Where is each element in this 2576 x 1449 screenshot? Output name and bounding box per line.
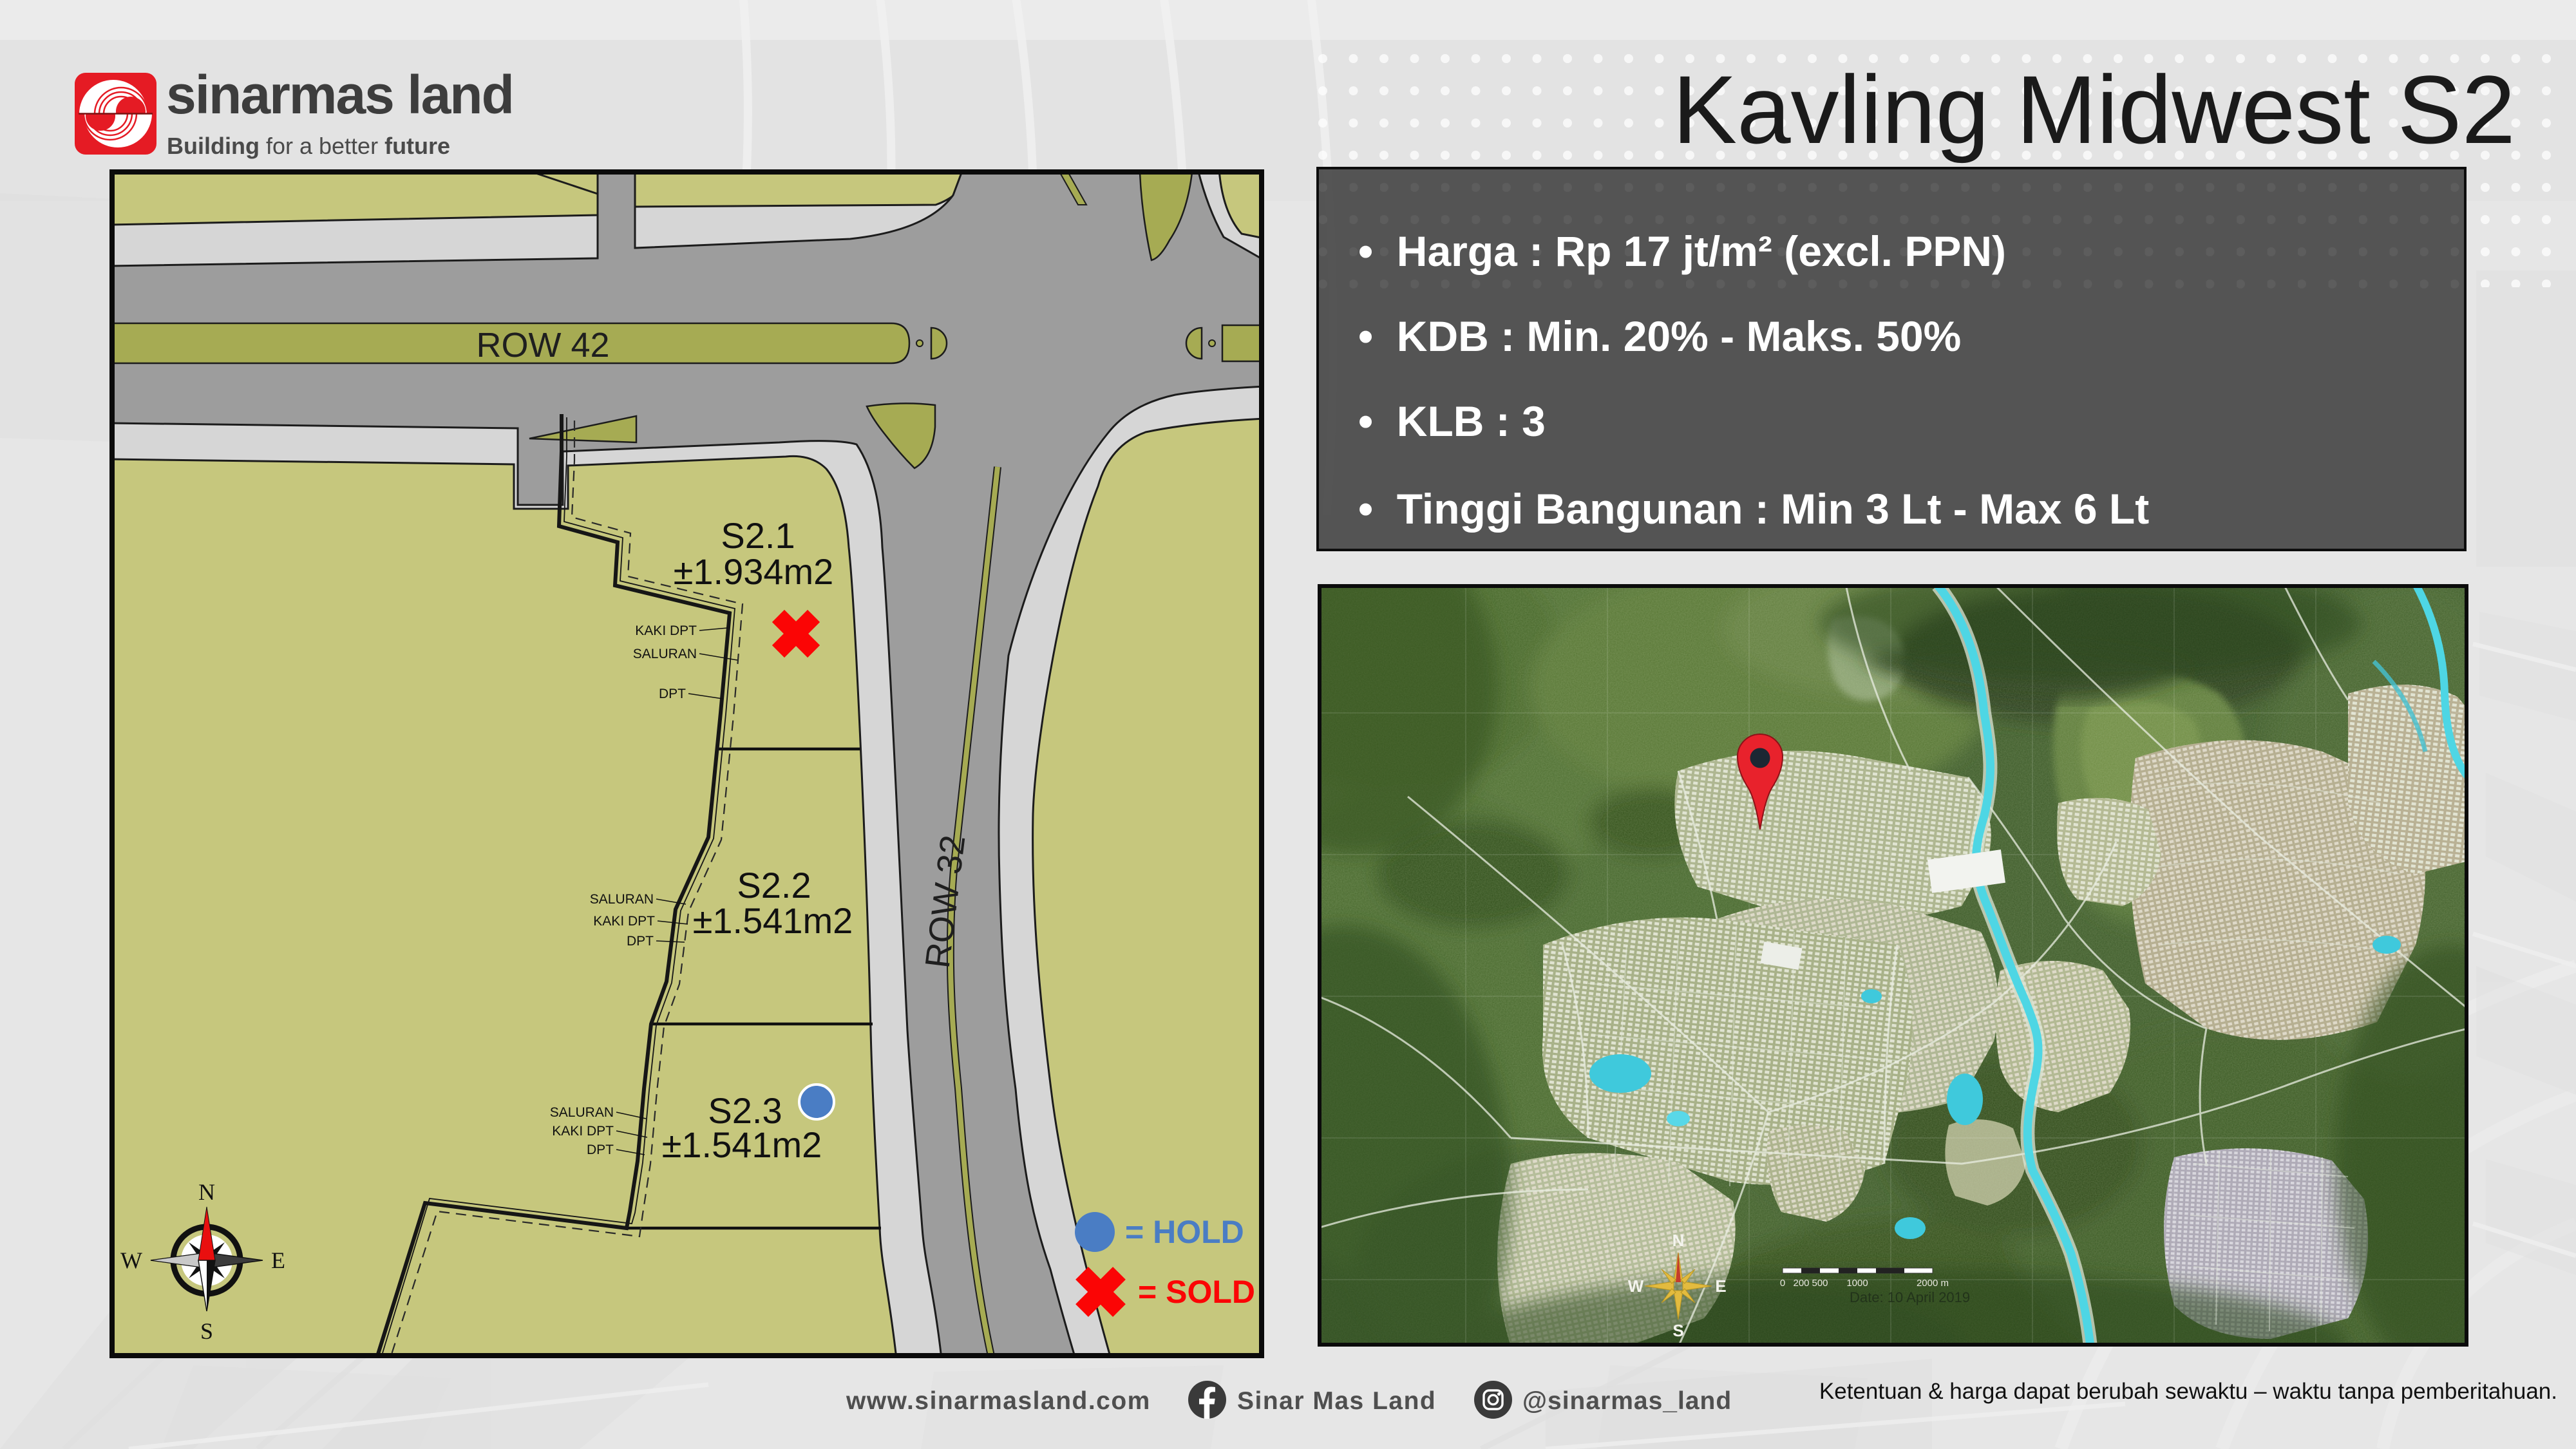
svg-text:E: E — [1715, 1276, 1726, 1296]
svg-text:±1.541m2: ±1.541m2 — [693, 900, 853, 941]
svg-text:N: N — [1672, 1231, 1685, 1250]
svg-text:S: S — [1672, 1321, 1683, 1340]
svg-text:0: 0 — [1780, 1278, 1785, 1289]
svg-text:KAKI DPT: KAKI DPT — [593, 914, 655, 929]
svg-text:Date: 10 April 2019: Date: 10 April 2019 — [1850, 1289, 1970, 1305]
svg-text:KAKI DPT: KAKI DPT — [635, 623, 697, 638]
svg-text:S2.1: S2.1 — [721, 515, 795, 556]
svg-text:SALURAN: SALURAN — [633, 647, 697, 661]
svg-text:KAKI DPT: KAKI DPT — [552, 1124, 614, 1139]
svg-text:= HOLD: = HOLD — [1125, 1214, 1244, 1250]
svg-text:500: 500 — [1812, 1278, 1828, 1289]
svg-text:2000 m: 2000 m — [1917, 1278, 1949, 1289]
svg-text:ROW 42: ROW 42 — [476, 326, 609, 365]
svg-text:DPT: DPT — [659, 687, 686, 701]
svg-text:S: S — [200, 1318, 213, 1344]
svg-text:DPT: DPT — [587, 1142, 614, 1157]
svg-text:W: W — [1628, 1276, 1644, 1296]
svg-text:SALURAN: SALURAN — [590, 892, 654, 907]
svg-text:±1.541m2: ±1.541m2 — [662, 1124, 822, 1165]
svg-text:= SOLD: = SOLD — [1138, 1274, 1255, 1310]
svg-text:W: W — [120, 1247, 142, 1273]
svg-text:200: 200 — [1793, 1278, 1809, 1289]
svg-text:S2.2: S2.2 — [737, 865, 811, 905]
svg-text:DPT: DPT — [627, 934, 654, 949]
svg-text:1000: 1000 — [1846, 1278, 1868, 1289]
svg-text:E: E — [271, 1247, 285, 1273]
svg-text:SALURAN: SALURAN — [550, 1105, 614, 1120]
svg-text:N: N — [198, 1179, 215, 1205]
svg-text:±1.934m2: ±1.934m2 — [674, 551, 834, 592]
